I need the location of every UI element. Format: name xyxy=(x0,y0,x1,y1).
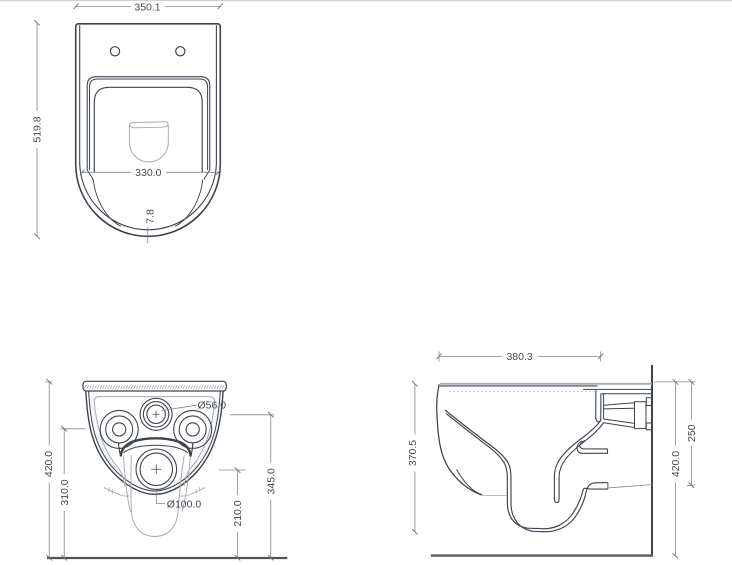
svg-text:420.0: 420.0 xyxy=(670,451,682,477)
svg-text:310.0: 310.0 xyxy=(59,479,71,505)
svg-text:210.0: 210.0 xyxy=(232,500,244,526)
svg-text:250: 250 xyxy=(686,424,698,442)
svg-text:Ø56.0: Ø56.0 xyxy=(198,400,227,412)
svg-text:519.8: 519.8 xyxy=(32,116,44,142)
svg-text:345.0: 345.0 xyxy=(265,468,277,494)
svg-text:330.0: 330.0 xyxy=(135,167,161,179)
svg-text:7.8: 7.8 xyxy=(145,209,157,224)
svg-text:Ø100.0: Ø100.0 xyxy=(167,499,202,511)
svg-text:380.3: 380.3 xyxy=(506,351,532,363)
svg-text:370.5: 370.5 xyxy=(407,440,419,466)
svg-text:350.1: 350.1 xyxy=(134,1,160,13)
svg-text:420.0: 420.0 xyxy=(43,451,55,477)
